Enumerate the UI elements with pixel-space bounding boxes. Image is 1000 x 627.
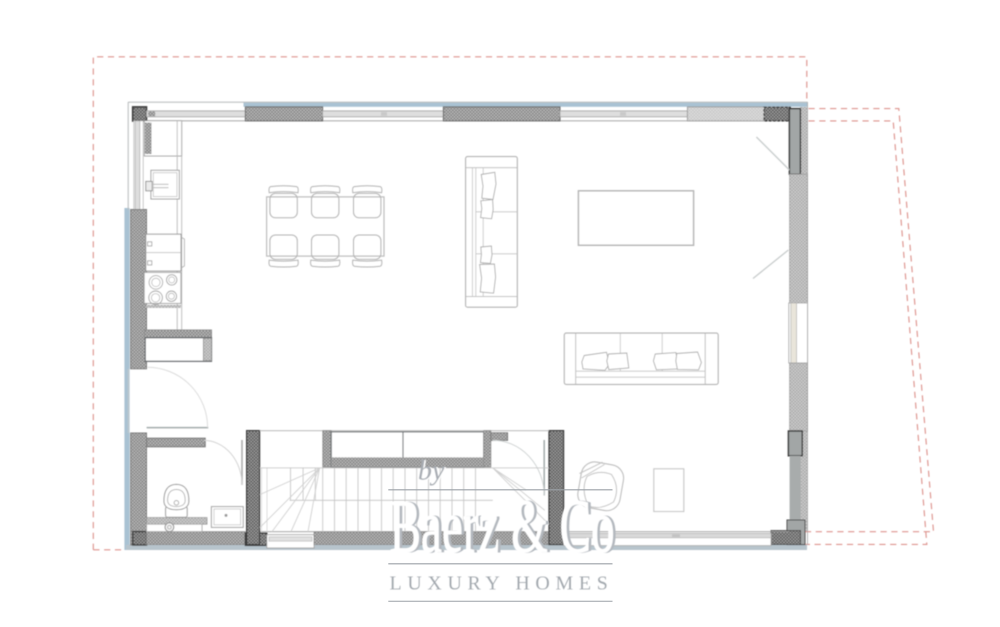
svg-text:by: by	[418, 456, 445, 487]
svg-text:Baerz & Co: Baerz & Co	[390, 485, 615, 569]
svg-text:LUXURY HOMES: LUXURY HOMES	[390, 574, 614, 595]
